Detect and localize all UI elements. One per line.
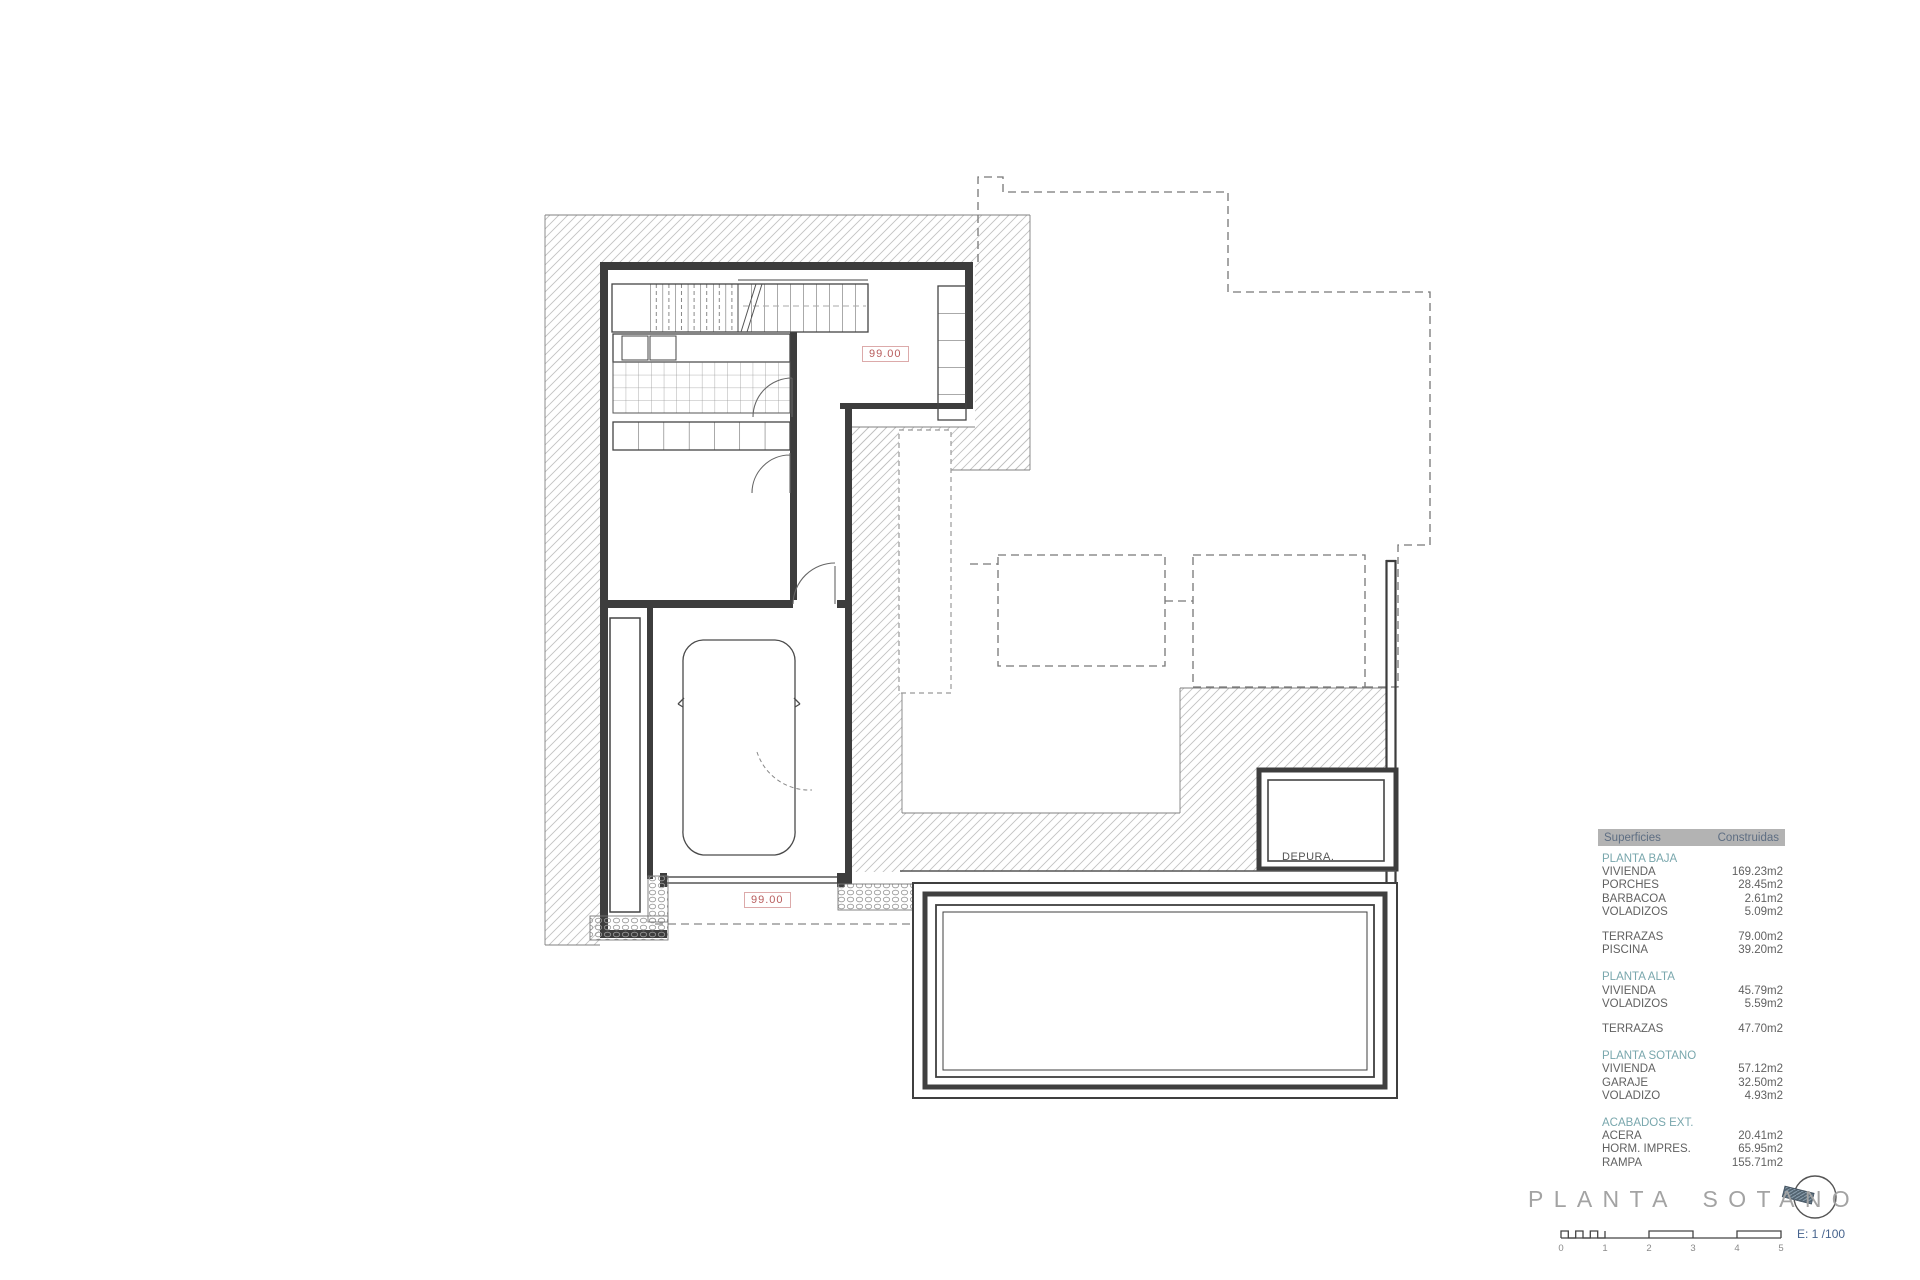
legend-row: VIVIENDA 45.79m2 <box>1598 985 1785 998</box>
legend-row-label: PLANTA BAJA <box>1602 853 1677 866</box>
legend-row: TERRAZAS 79.00m2 <box>1598 931 1785 944</box>
legend-row: PORCHES 28.45m2 <box>1598 879 1785 892</box>
legend-row <box>1598 1036 1785 1048</box>
legend-row-label: VOLADIZOS <box>1602 906 1668 919</box>
legend-row-label: RAMPA <box>1602 1157 1642 1170</box>
legend-row-label: PORCHES <box>1602 879 1659 892</box>
legend-row-label: PLANTA SOTANO <box>1602 1050 1696 1063</box>
surfaces-legend: Superficies Construidas PLANTA BAJA VIVI… <box>1598 829 1785 1170</box>
svg-text:4: 4 <box>1734 1243 1739 1254</box>
legend-row: VOLADIZOS 5.59m2 <box>1598 998 1785 1011</box>
legend-row-value: 45.79m2 <box>1738 985 1783 998</box>
legend-row-label: VOLADIZO <box>1602 1090 1660 1103</box>
legend-row: VOLADIZO 4.93m2 <box>1598 1090 1785 1103</box>
legend-row-value: 155.71m2 <box>1732 1157 1783 1170</box>
svg-text:0: 0 <box>1558 1243 1563 1254</box>
legend-row-value: 39.20m2 <box>1738 944 1783 957</box>
legend-row-label: TERRAZAS <box>1602 931 1663 944</box>
legend-row-value: 28.45m2 <box>1738 879 1783 892</box>
legend-row-label: BARBACOA <box>1602 893 1666 906</box>
scale-note: E: 1 /100 <box>1797 1227 1845 1241</box>
legend-row-label: ACABADOS EXT. <box>1602 1117 1693 1130</box>
scale-bar-numbers: 0 1 2 3 4 5 <box>1558 1243 1783 1254</box>
legend-row <box>1598 919 1785 931</box>
legend-row-label: PLANTA ALTA <box>1602 971 1675 984</box>
swimming-pool <box>913 883 1397 1098</box>
legend-row-label: ACERA <box>1602 1130 1642 1143</box>
legend-row-value: 2.61m2 <box>1745 893 1783 906</box>
legend-row: PISCINA 39.20m2 <box>1598 944 1785 957</box>
staircase <box>612 280 868 332</box>
level-marker-lower: 99.00 <box>744 892 791 908</box>
svg-text:2: 2 <box>1646 1243 1651 1254</box>
legend-row: HORM. IMPRES. 65.95m2 <box>1598 1143 1785 1156</box>
legend-row: RAMPA 155.71m2 <box>1598 1157 1785 1170</box>
legend-row: VIVIENDA 57.12m2 <box>1598 1063 1785 1076</box>
legend-row-label: HORM. IMPRES. <box>1602 1143 1691 1156</box>
legend-row: ACERA 20.41m2 <box>1598 1130 1785 1143</box>
ramp-strip <box>610 618 640 912</box>
legend-row-value: 169.23m2 <box>1732 866 1783 879</box>
svg-text:1: 1 <box>1602 1243 1607 1254</box>
legend-header-col1: Superficies <box>1604 832 1661 844</box>
garage-door-swing <box>757 752 812 790</box>
tiled-floor <box>613 362 790 413</box>
scale-bar <box>1561 1231 1781 1238</box>
legend-row-label: VIVIENDA <box>1602 866 1656 879</box>
lightwell-dashed-rect <box>899 430 951 693</box>
legend-row: BARBACOA 2.61m2 <box>1598 893 1785 906</box>
legend-row: PLANTA BAJA <box>1598 853 1785 866</box>
pool-plant-room: DEPURA. <box>1259 770 1396 869</box>
legend-row-label: TERRAZAS <box>1602 1023 1663 1036</box>
svg-text:3: 3 <box>1690 1243 1695 1254</box>
legend-row <box>1598 1103 1785 1115</box>
legend-row <box>1598 957 1785 969</box>
plant-room-label: DEPURA. <box>1282 851 1334 863</box>
legend-row-label: VOLADIZOS <box>1602 998 1668 1011</box>
legend-row-label: VIVIENDA <box>1602 1063 1656 1076</box>
legend-row: VOLADIZOS 5.09m2 <box>1598 906 1785 919</box>
legend-row-value: 65.95m2 <box>1738 1143 1783 1156</box>
legend-row-value: 79.00m2 <box>1738 931 1783 944</box>
legend-row-label: VIVIENDA <box>1602 985 1656 998</box>
level-marker-upper: 99.00 <box>862 346 909 362</box>
legend-header-col2: Construidas <box>1718 832 1779 844</box>
garage-door <box>667 877 837 883</box>
legend-row: GARAJE 32.50m2 <box>1598 1077 1785 1090</box>
wardrobe-row <box>613 422 790 450</box>
legend-row-value: 5.59m2 <box>1745 998 1783 1011</box>
drawing-sheet: { "drawing": { "labels": { "upper_level"… <box>0 0 1920 1280</box>
legend-row-value: 5.09m2 <box>1745 906 1783 919</box>
shelf-column <box>938 286 966 420</box>
svg-text:5: 5 <box>1778 1243 1783 1254</box>
sheet-title: PLANTA SOTANO <box>1528 1186 1860 1213</box>
upper-floor-dashed-outline <box>970 177 1430 687</box>
cabinet-counter <box>613 334 790 362</box>
legend-row-value: 32.50m2 <box>1738 1077 1783 1090</box>
legend-row: VIVIENDA 169.23m2 <box>1598 866 1785 879</box>
legend-row-label: GARAJE <box>1602 1077 1648 1090</box>
legend-row <box>1598 1011 1785 1023</box>
legend-header: Superficies Construidas <box>1598 829 1785 846</box>
legend-row-value: 47.70m2 <box>1738 1023 1783 1036</box>
legend-row: PLANTA SOTANO <box>1598 1050 1785 1063</box>
legend-row: PLANTA ALTA <box>1598 971 1785 984</box>
legend-row: TERRAZAS 47.70m2 <box>1598 1023 1785 1036</box>
legend-rows: PLANTA BAJA VIVIENDA 169.23m2 PORCHES 28… <box>1598 853 1785 1170</box>
legend-row-value: 4.93m2 <box>1745 1090 1783 1103</box>
legend-row-value: 57.12m2 <box>1738 1063 1783 1076</box>
car <box>678 640 800 855</box>
legend-row: ACABADOS EXT. <box>1598 1117 1785 1130</box>
legend-row-value: 20.41m2 <box>1738 1130 1783 1143</box>
legend-row-label: PISCINA <box>1602 944 1648 957</box>
